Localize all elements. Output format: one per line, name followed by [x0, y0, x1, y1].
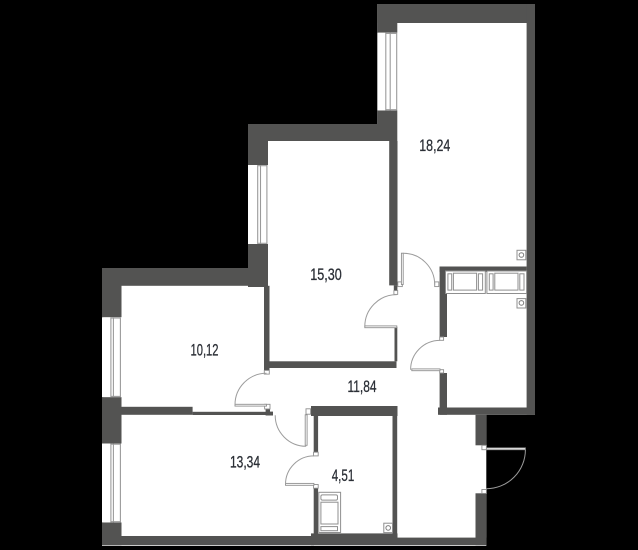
- svg-text:18,24: 18,24: [419, 136, 450, 155]
- svg-text:13,34: 13,34: [230, 453, 260, 472]
- svg-text:11,84: 11,84: [348, 377, 377, 396]
- svg-text:15,30: 15,30: [310, 265, 342, 284]
- svg-text:10,12: 10,12: [191, 341, 219, 360]
- svg-text:4,51: 4,51: [332, 466, 355, 485]
